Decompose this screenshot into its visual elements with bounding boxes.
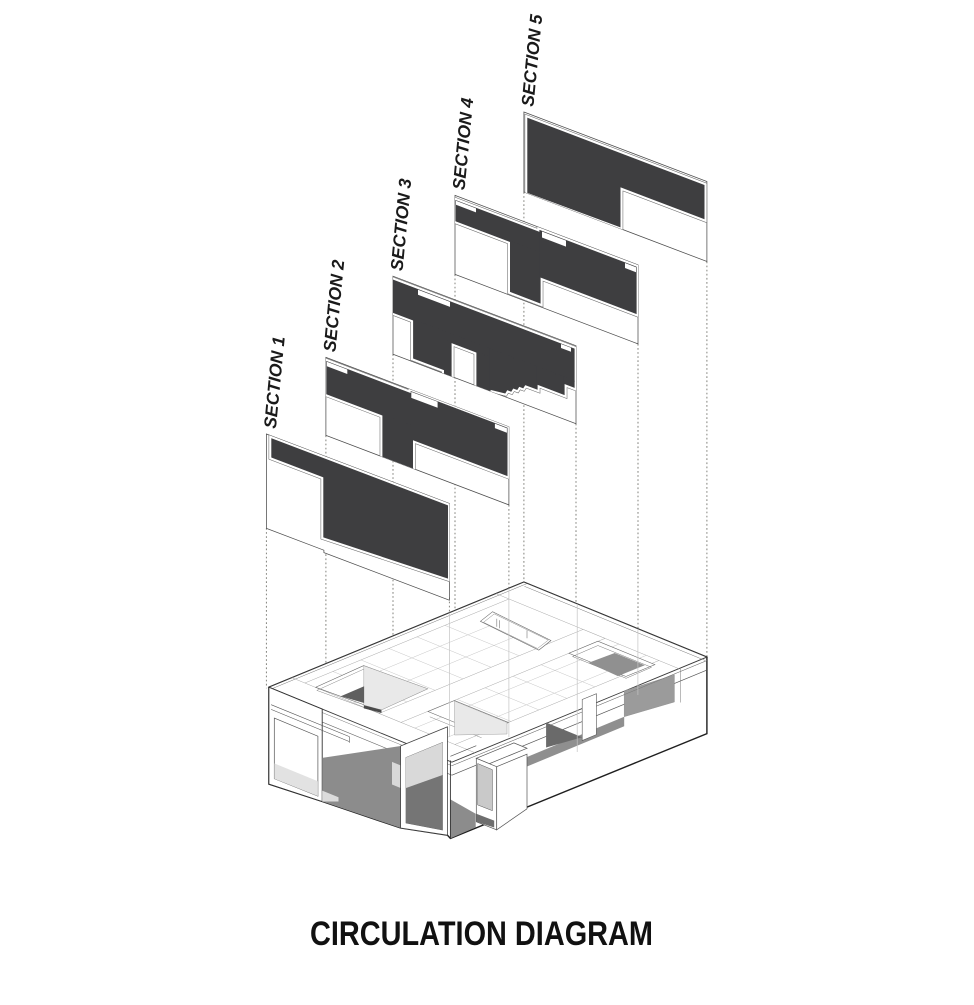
svg-text:CIRCULATION DIAGRAM: CIRCULATION DIAGRAM xyxy=(310,914,653,953)
